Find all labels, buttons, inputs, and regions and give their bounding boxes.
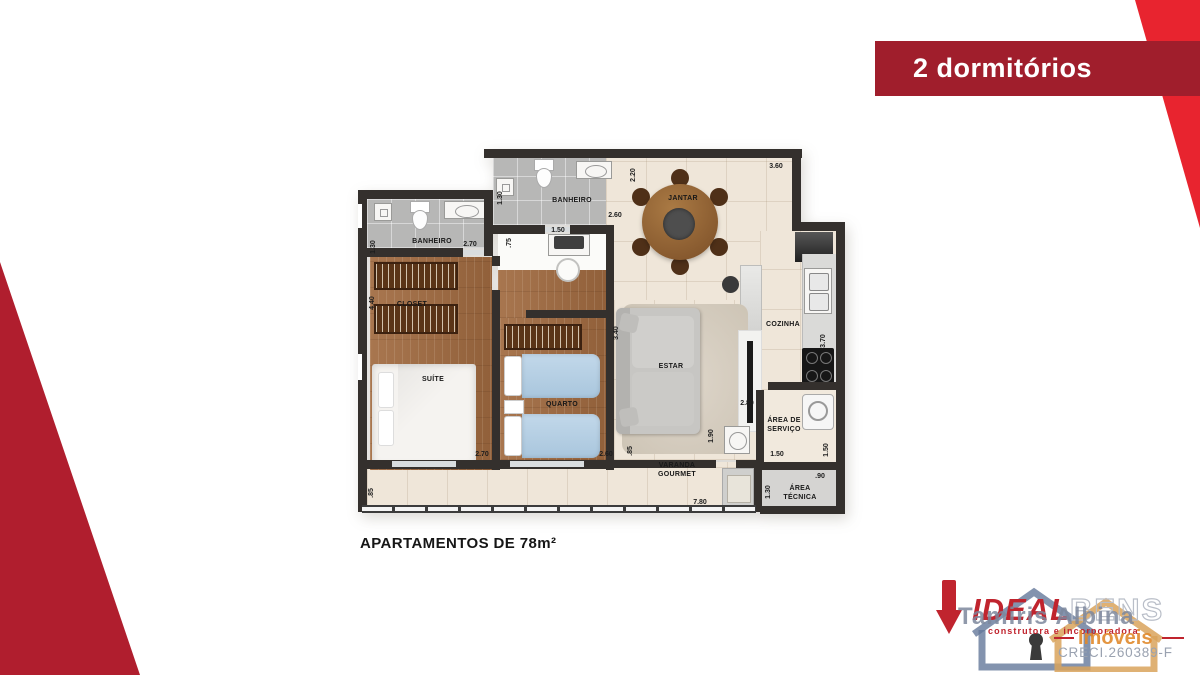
presentation-slide: 2 dormitórios bbox=[0, 0, 1200, 675]
room-label-estar: ESTAR bbox=[641, 362, 701, 371]
gourmet-cabinet bbox=[722, 468, 754, 508]
door-opening bbox=[463, 250, 484, 255]
round-basin-icon bbox=[556, 258, 580, 282]
dimension-label: 4.40 bbox=[369, 291, 377, 315]
dimension-label: 2.70 bbox=[468, 451, 496, 458]
dimension-label: 1.50 bbox=[544, 227, 572, 234]
dimension-label: 2.70 bbox=[456, 241, 484, 248]
single-bed-icon bbox=[504, 414, 600, 458]
dash-decoration bbox=[1054, 637, 1074, 639]
floor-plan: BANHEIRO BANHEIRO JANTAR COZINHA ESTAR C… bbox=[358, 148, 845, 524]
agency-logo: IDEALBENS Tamiris Albina construtora e i… bbox=[928, 572, 1196, 672]
creci-license: CRECI.260389-F bbox=[1058, 645, 1173, 660]
room-label-banheiro-social: BANHEIRO bbox=[537, 196, 607, 205]
dimension-label: 7.80 bbox=[686, 499, 714, 506]
single-bed-icon bbox=[504, 354, 600, 398]
dash-decoration bbox=[1162, 637, 1184, 639]
room-label-servico: ÁREA DE SERVIÇO bbox=[749, 416, 819, 435]
dimension-label: 3.70 bbox=[820, 329, 828, 353]
dimension-label: 1.50 bbox=[823, 438, 831, 462]
dimension-label: .75 bbox=[506, 231, 514, 255]
room-label-suite: SUÍTE bbox=[403, 375, 463, 384]
sink-icon bbox=[444, 201, 486, 219]
room-label-jantar: JANTAR bbox=[653, 194, 713, 203]
corner-triangle-decoration bbox=[0, 262, 140, 675]
gourmet-sink-icon bbox=[724, 426, 750, 454]
nightstand bbox=[504, 400, 524, 414]
dimension-label: 1.30 bbox=[497, 186, 505, 210]
room-label-cozinha: COZINHA bbox=[753, 320, 813, 329]
table-centerpiece bbox=[663, 208, 695, 240]
wardrobe-icon bbox=[504, 324, 582, 350]
tv-icon bbox=[747, 341, 753, 423]
wardrobe-icon bbox=[374, 262, 458, 290]
dimension-label: 1.30 bbox=[370, 235, 378, 259]
sliding-door bbox=[392, 461, 456, 467]
window bbox=[358, 354, 362, 380]
dimension-label: 1.50 bbox=[763, 451, 791, 458]
room-label-closet: CLOSET bbox=[382, 300, 442, 309]
room-label-varanda: VARANDA GOURMET bbox=[642, 461, 712, 480]
kitchen-sink-icon bbox=[804, 268, 832, 314]
sliding-door bbox=[510, 461, 584, 467]
dimension-label: 3.40 bbox=[613, 321, 621, 345]
plan-caption: APARTAMENTOS DE 78m² bbox=[360, 535, 556, 552]
dimension-label: .85 bbox=[368, 481, 376, 505]
top-right-accent-triangle bbox=[1135, 0, 1200, 228]
banner-label: 2 dormitórios bbox=[913, 53, 1092, 84]
balcony-glass-front bbox=[362, 505, 756, 513]
shower-icon bbox=[374, 203, 392, 221]
dimension-label: 2.20 bbox=[630, 163, 638, 187]
sink-icon bbox=[576, 161, 612, 179]
dimension-label: 3.60 bbox=[762, 163, 790, 170]
map-pin-icon bbox=[942, 580, 956, 612]
window bbox=[358, 204, 362, 228]
dimension-label: 2.60 bbox=[592, 451, 620, 458]
dimension-label: .90 bbox=[806, 473, 834, 480]
dimension-label: 1.90 bbox=[708, 424, 716, 448]
room-label-quarto: QUARTO bbox=[532, 400, 592, 409]
room-label-tecnica: ÁREA TÉCNICA bbox=[765, 484, 835, 503]
dimension-label: .85 bbox=[627, 439, 635, 463]
banner-2-dormitorios: 2 dormitórios bbox=[875, 41, 1200, 96]
dimension-label: 2.80 bbox=[733, 400, 761, 407]
dimension-label: 2.60 bbox=[601, 212, 629, 219]
washbasin-icon bbox=[554, 236, 584, 249]
stool-icon bbox=[722, 276, 739, 293]
dimension-label: 1.30 bbox=[765, 480, 773, 504]
